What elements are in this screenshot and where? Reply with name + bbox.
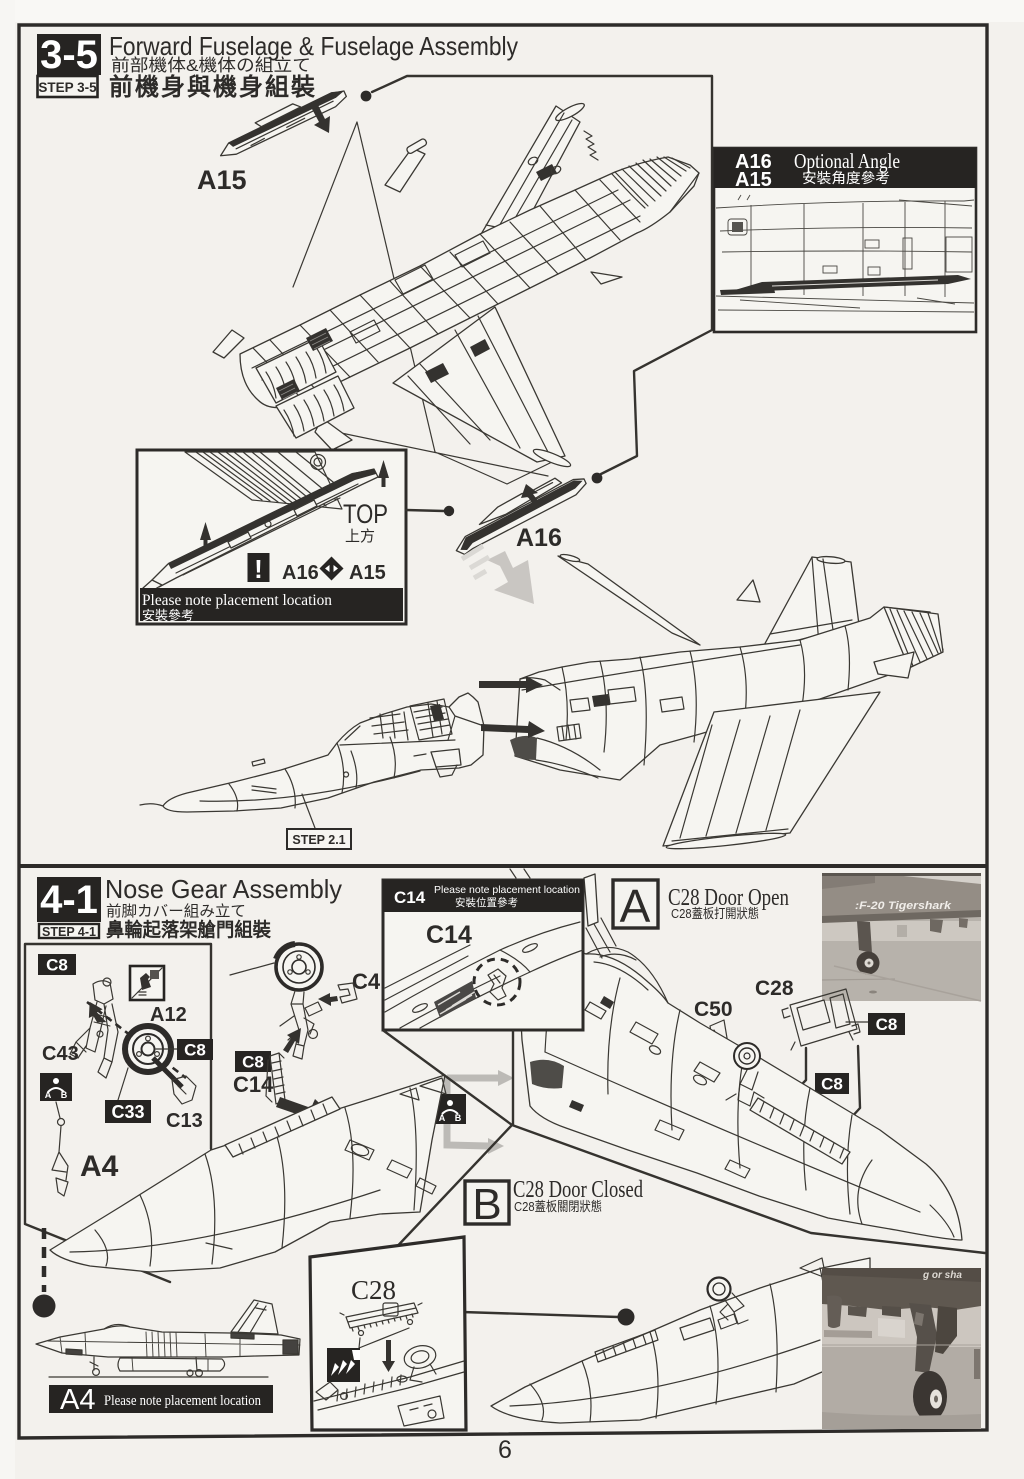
- svg-text:C13: C13: [166, 1110, 203, 1132]
- svg-text:A16: A16: [516, 524, 562, 552]
- svg-text:前部機体&機体の組立て: 前部機体&機体の組立て: [111, 56, 311, 75]
- svg-text:C33: C33: [111, 1102, 144, 1122]
- svg-text:STEP 3-5: STEP 3-5: [38, 80, 97, 95]
- svg-text:C8: C8: [46, 956, 68, 975]
- svg-text:C14: C14: [233, 1072, 274, 1097]
- svg-text:A4: A4: [80, 1150, 119, 1183]
- svg-text:C50: C50: [694, 998, 733, 1021]
- svg-text:STEP 2.1: STEP 2.1: [292, 833, 345, 847]
- svg-text:B: B: [61, 1090, 68, 1100]
- svg-text:C4: C4: [352, 969, 381, 994]
- svg-text:前機身與機身組裝: 前機身與機身組裝: [109, 73, 317, 101]
- svg-text:C28: C28: [755, 977, 794, 1000]
- svg-text:鼻輪起落架艙門組裝: 鼻輪起落架艙門組裝: [106, 918, 272, 941]
- svg-text:A: A: [45, 1090, 52, 1100]
- svg-text:3-5: 3-5: [40, 33, 98, 77]
- svg-text:安裝位置參考: 安裝位置參考: [455, 896, 518, 909]
- svg-text:6: 6: [498, 1436, 512, 1464]
- svg-text:C8: C8: [876, 1015, 898, 1034]
- svg-text:TOP: TOP: [343, 499, 388, 529]
- svg-text:前脚カバー組み立て: 前脚カバー組み立て: [106, 903, 246, 920]
- svg-text:Please note placement location: Please note placement location: [434, 884, 580, 896]
- svg-text:g or sha: g or sha: [922, 1270, 962, 1281]
- svg-text:Please note placement location: Please note placement location: [104, 1393, 261, 1409]
- svg-text:C28: C28: [351, 1275, 396, 1305]
- svg-text:A15: A15: [735, 169, 772, 191]
- svg-text:C28蓋板關閉狀態: C28蓋板關閉狀態: [514, 1199, 602, 1214]
- svg-text:C28蓋板打開狀態: C28蓋板打開狀態: [671, 906, 759, 921]
- svg-text:A12: A12: [150, 1004, 187, 1026]
- svg-text:A: A: [620, 880, 651, 932]
- svg-text:C14: C14: [426, 921, 472, 949]
- svg-text:A: A: [439, 1113, 446, 1123]
- svg-text:A16: A16: [282, 562, 319, 584]
- svg-text:B: B: [472, 1180, 501, 1229]
- svg-text:Please note placement location: Please note placement location: [142, 592, 332, 609]
- svg-text:A4: A4: [60, 1384, 95, 1416]
- svg-text:B: B: [455, 1113, 462, 1123]
- svg-text:安裝參考: 安裝參考: [142, 608, 194, 623]
- svg-text::F-20 Tigershark: :F-20 Tigershark: [855, 900, 952, 912]
- svg-text:C8: C8: [184, 1041, 206, 1060]
- svg-text:STEP 4-1: STEP 4-1: [42, 925, 96, 939]
- svg-text:安裝角度參考: 安裝角度參考: [802, 170, 890, 186]
- svg-text:A15: A15: [349, 562, 386, 584]
- svg-text:C14: C14: [394, 888, 426, 907]
- svg-text:C43: C43: [42, 1043, 79, 1065]
- svg-text:Nose Gear Assembly: Nose Gear Assembly: [105, 874, 342, 904]
- svg-text:4-1: 4-1: [40, 878, 98, 922]
- svg-text:A15: A15: [197, 165, 247, 195]
- svg-text:C8: C8: [821, 1075, 843, 1094]
- svg-text:上方: 上方: [345, 528, 375, 545]
- svg-text:!: !: [254, 554, 263, 584]
- svg-text:C8: C8: [242, 1053, 264, 1072]
